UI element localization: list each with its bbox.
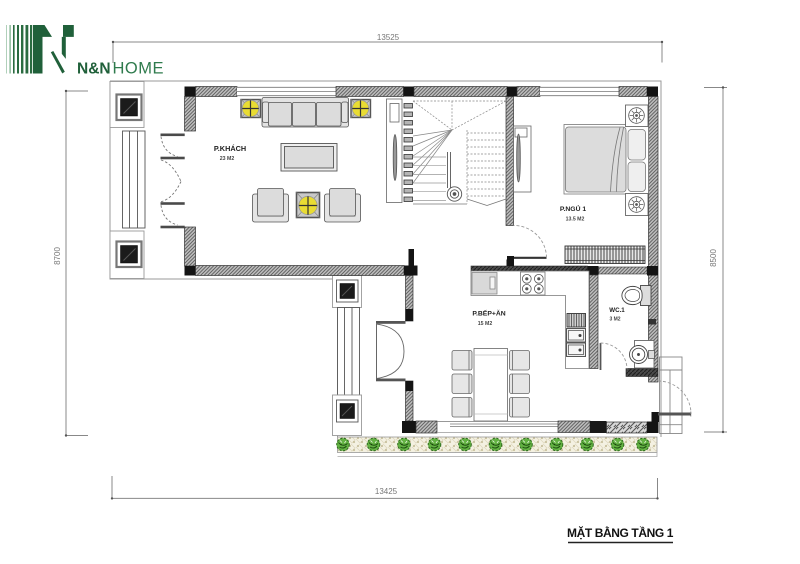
svg-text:3 M2: 3 M2: [609, 317, 620, 323]
svg-text:WC.1: WC.1: [609, 307, 625, 314]
svg-text:13425: 13425: [375, 487, 398, 496]
svg-text:8700: 8700: [53, 247, 62, 265]
svg-text:MẶT BẰNG TẦNG 1: MẶT BẰNG TẦNG 1: [567, 525, 674, 540]
svg-text:N&N: N&N: [77, 61, 111, 78]
svg-text:13525: 13525: [377, 33, 400, 42]
svg-text:23 M2: 23 M2: [220, 156, 235, 162]
svg-text:8500: 8500: [709, 249, 718, 267]
svg-text:P.KHÁCH: P.KHÁCH: [214, 144, 246, 153]
svg-text:13.5 M2: 13.5 M2: [566, 217, 585, 223]
svg-text:15 M2: 15 M2: [478, 321, 493, 327]
svg-text:HOME: HOME: [113, 60, 165, 78]
svg-text:P.NGỦ 1: P.NGỦ 1: [560, 204, 587, 213]
